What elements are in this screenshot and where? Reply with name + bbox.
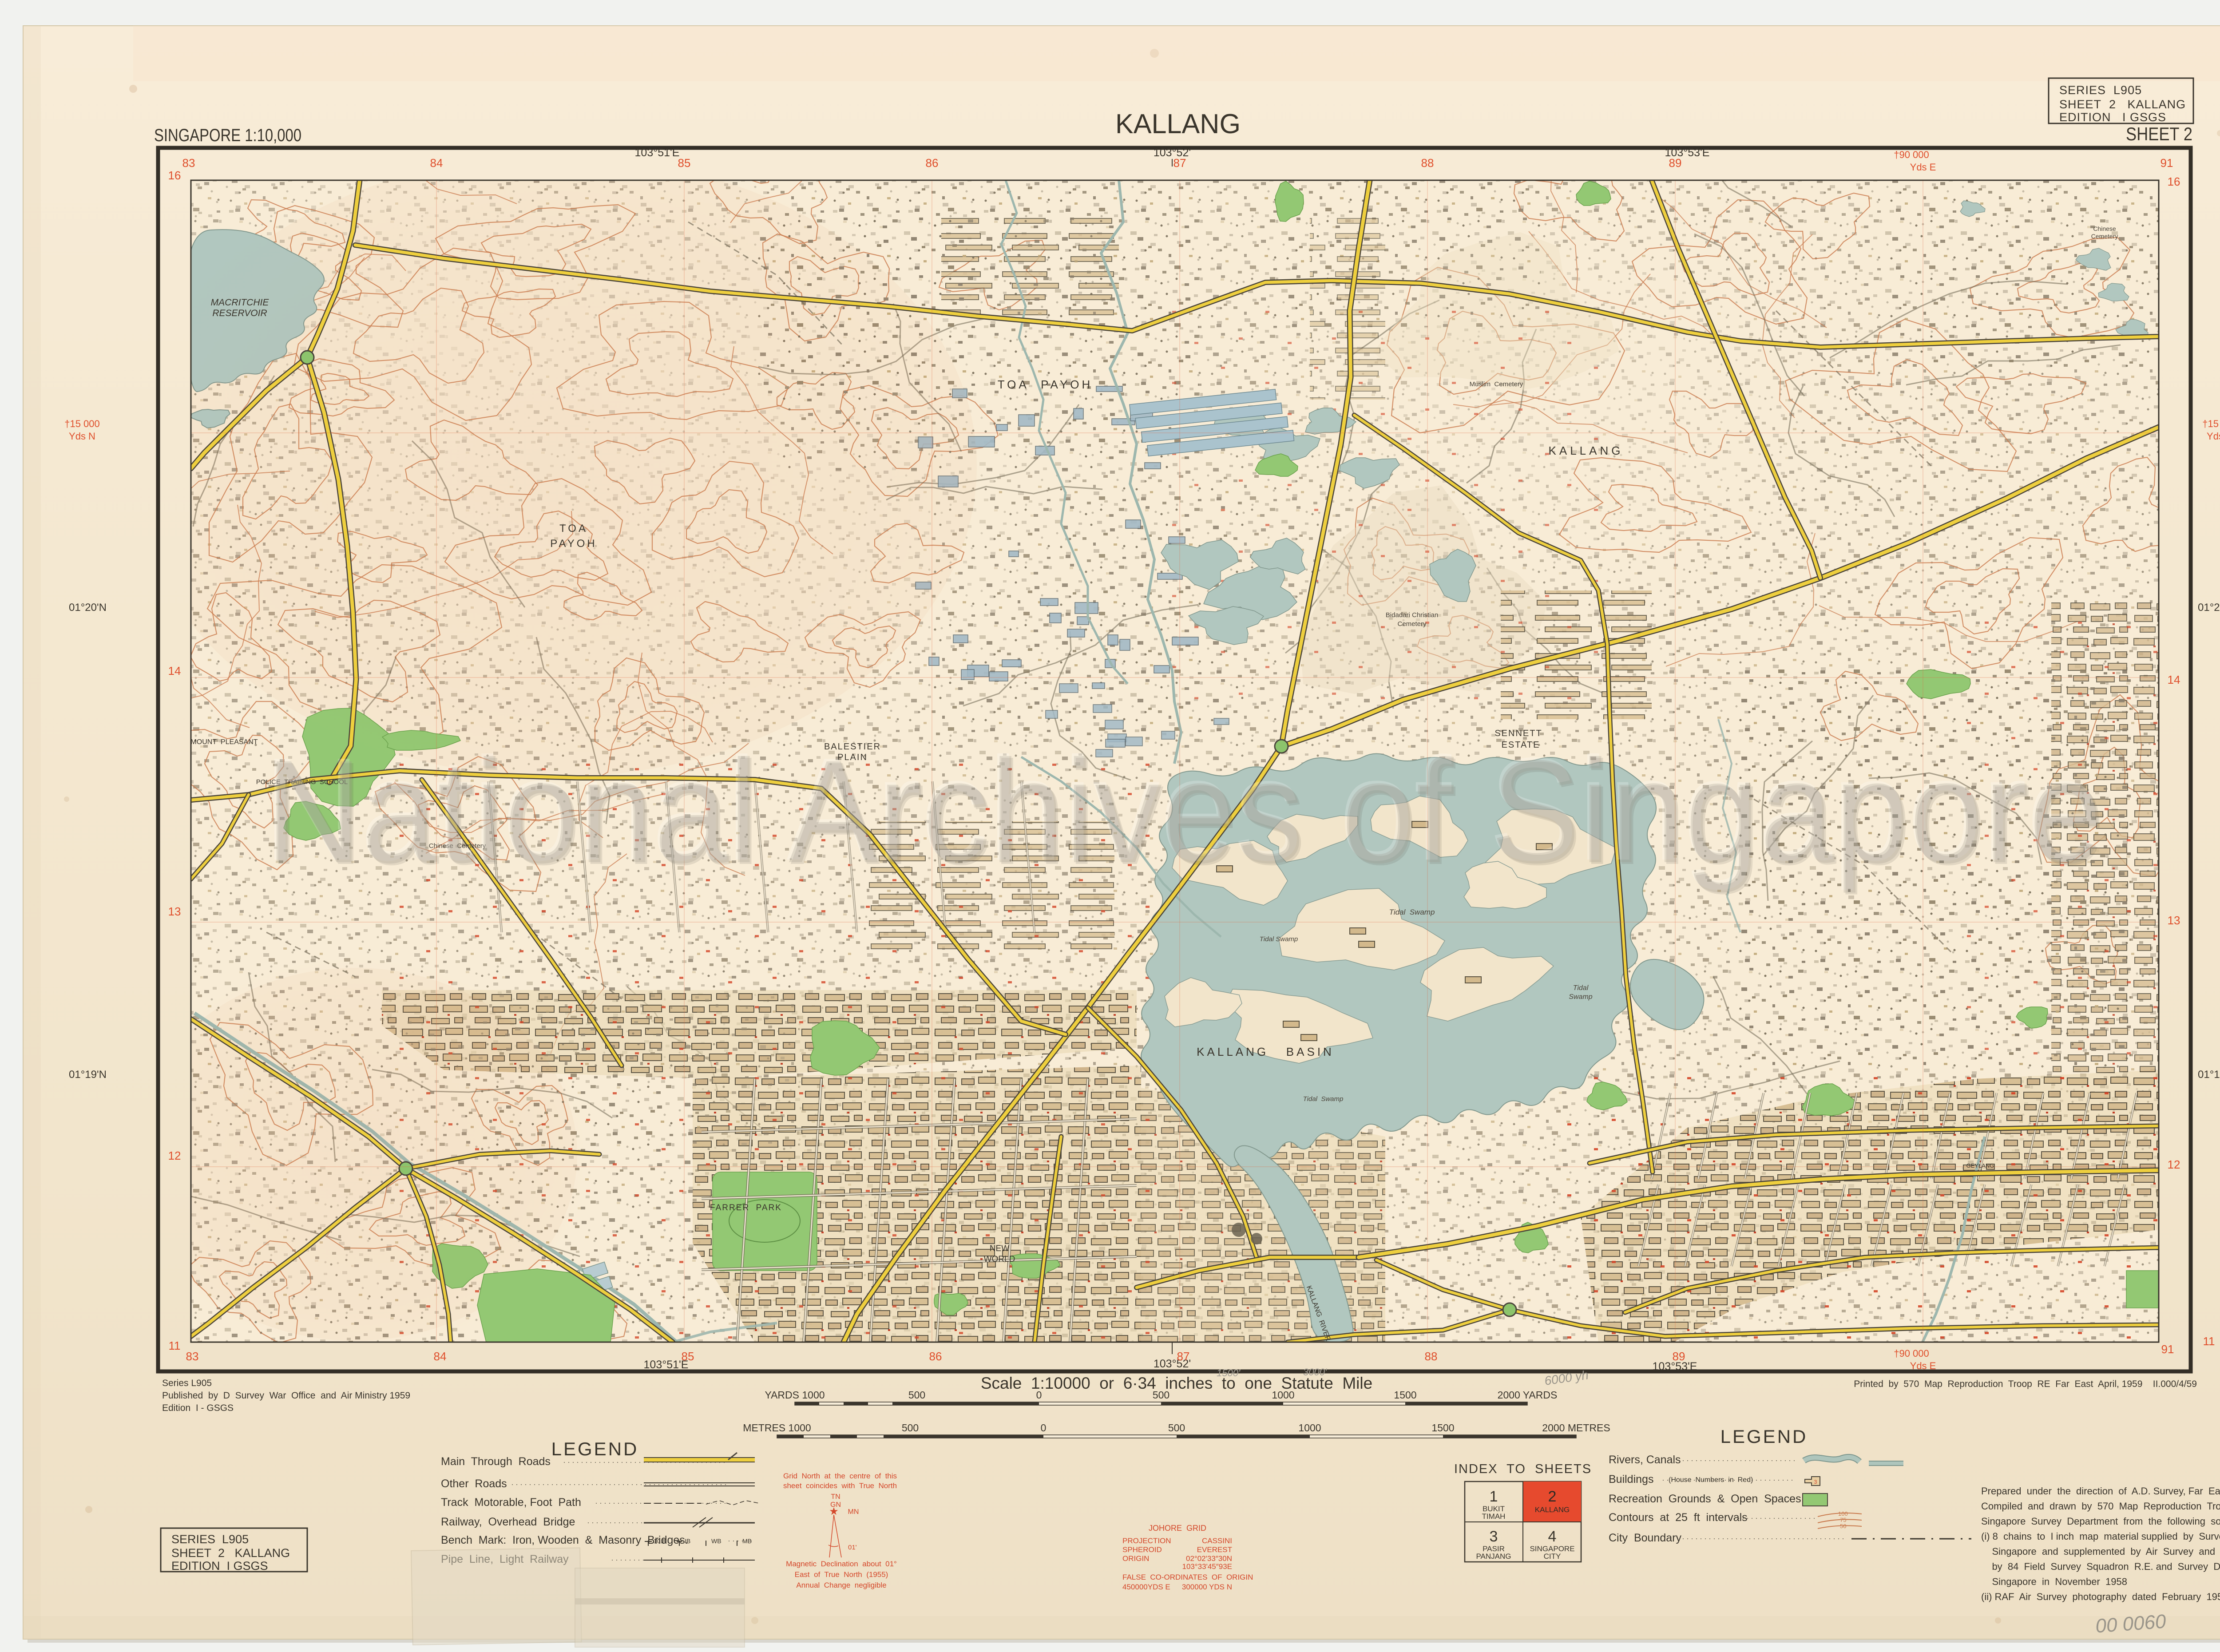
svg-text:LEGEND: LEGEND [551,1438,639,1459]
svg-text:87: 87 [1173,156,1186,170]
svg-text:TIMAH: TIMAH [1482,1512,1506,1521]
svg-text:500: 500 [908,1389,925,1401]
svg-text:East of True North (1955): East of True North (1955) [795,1570,888,1579]
svg-text:86: 86 [926,156,939,170]
svg-text:YARDS 1000: YARDS 1000 [765,1389,825,1401]
svg-text:Prepared under the directio: Prepared under the direction of A.D. Sur… [1981,1486,2220,1497]
svg-text:METRES 1000: METRES 1000 [743,1422,811,1434]
svg-text:0: 0 [1041,1422,1047,1434]
svg-text:FALSE CO-ORDINATES OF ORIGI: FALSE CO-ORDINATES OF ORIGIN [1122,1573,1253,1581]
svg-text:300000 YDS N: 300000 YDS N [1182,1583,1232,1591]
svg-text:Track Motorable, Foot Path: Track Motorable, Foot Path [441,1496,581,1509]
svg-text:TN: TN [831,1493,840,1501]
svg-text:CITY: CITY [1544,1552,1561,1561]
svg-text:SERIES L905: SERIES L905 [2059,83,2142,97]
svg-text:1500: 1500 [1394,1389,1416,1401]
svg-text:National Archives of Singapore: National Archives of Singapore [266,729,2104,894]
svg-text:SPHEROID: SPHEROID [1122,1545,1162,1554]
svg-text:Tidal Swamp: Tidal Swamp [1260,935,1298,943]
svg-text:City Boundary: City Boundary [1609,1532,1681,1544]
svg-text:1500': 1500' [1217,1367,1241,1379]
svg-text:Main Through Roads: Main Through Roads [441,1455,551,1468]
svg-text:01°19'N: 01°19'N [69,1069,107,1081]
svg-text:Singapore and supplemented: Singapore and supplemented by Air Survey… [1981,1546,2220,1557]
svg-text:KALLANG BASIN: KALLANG BASIN [1197,1045,1334,1058]
svg-text:0: 0 [1036,1389,1042,1401]
svg-text:Edition I - GSGS: Edition I - GSGS [162,1403,234,1413]
svg-text:86: 86 [929,1350,942,1363]
svg-text:83: 83 [182,156,195,170]
svg-text:500: 500 [1153,1389,1169,1401]
svg-text:2000 YARDS: 2000 YARDS [1498,1389,1558,1401]
svg-text:MB: MB [742,1537,752,1545]
svg-text:3: 3 [1814,1479,1817,1485]
svg-text:87: 87 [1177,1350,1190,1363]
svg-text:MOUNT PLEASANT: MOUNT PLEASANT [190,738,258,746]
svg-text:WB: WB [711,1537,721,1545]
svg-text:11: 11 [2203,1335,2215,1348]
svg-text:Compiled and drawn by 570: Compiled and drawn by 570 Map Reproducti… [1981,1501,2220,1512]
svg-text:Series L905: Series L905 [162,1378,212,1388]
svg-text:3000': 3000' [1303,1367,1327,1378]
svg-text:Grid North at the centre: Grid North at the centre of this [783,1472,897,1480]
svg-text:Swamp: Swamp [1569,993,1592,1001]
svg-text:PROJECTION: PROJECTION [1122,1537,1171,1545]
svg-text:KALLANG: KALLANG [1535,1505,1570,1514]
svg-text:450000YDS E: 450000YDS E [1122,1583,1170,1591]
svg-text:GEYLANG: GEYLANG [1966,1162,1994,1169]
svg-text:EVEREST: EVEREST [1197,1545,1232,1554]
svg-text:Published by D Survey War: Published by D Survey War Office and Air… [162,1391,410,1401]
svg-text:11: 11 [169,1339,181,1352]
svg-text:Railway, Overhead Bridge: Railway, Overhead Bridge [441,1516,575,1528]
svg-text:89: 89 [1669,156,1682,170]
svg-text:MACRITCHIE: MACRITCHIE [211,297,270,308]
svg-text:NEW: NEW [990,1244,1009,1253]
svg-text:13: 13 [2168,914,2180,927]
svg-text:JOHORE GRID: JOHORE GRID [1149,1524,1206,1533]
svg-text:EDITION I GSGS: EDITION I GSGS [171,1559,268,1573]
svg-text:91: 91 [2161,156,2173,170]
svg-text:Singapore in November 1958: Singapore in November 1958 [1981,1576,2127,1587]
svg-text:50: 50 [1840,1523,1846,1529]
svg-text:Magnetic Declination about: Magnetic Declination about 01° [786,1560,897,1568]
svg-text:13: 13 [168,905,181,918]
svg-text:FARRER PARK: FARRER PARK [710,1203,782,1212]
svg-text:103°51'E: 103°51'E [635,147,680,159]
svg-text:by 84 Field Survey Squadro: by 84 Field Survey Squadron R.E. and Sur… [1981,1561,2220,1572]
svg-text:Yds E: Yds E [1910,162,1936,173]
svg-text:10.8: 10.8 [654,1537,666,1545]
svg-text:1: 1 [1490,1488,1498,1505]
svg-text:Singapore Survey Department: Singapore Survey Department from the fol… [1981,1516,2220,1527]
svg-text:3: 3 [1490,1528,1498,1545]
svg-text:ORIGIN: ORIGIN [1122,1554,1149,1563]
svg-text:103°33'45″93E: 103°33'45″93E [1182,1562,1233,1571]
svg-text:(House Numbers in Red): (House Numbers in Red) [1669,1476,1753,1484]
svg-text:Muslim Cemetery: Muslim Cemetery [1470,380,1523,388]
svg-text:sheet coincides with True: sheet coincides with True North [783,1482,897,1490]
svg-text:MN: MN [848,1508,859,1516]
svg-text:01°20'N: 01°20'N [69,602,107,614]
svg-text:Bidadari Christian: Bidadari Christian [1386,611,1438,619]
svg-text:TOA: TOA [559,523,588,535]
svg-text:01': 01' [848,1544,857,1551]
svg-text:84: 84 [430,156,443,170]
svg-text:500: 500 [902,1422,919,1434]
svg-text:SHEET 2: SHEET 2 [2126,123,2192,144]
svg-text:16: 16 [2168,175,2180,188]
svg-text:KALLANG: KALLANG [1115,109,1241,139]
svg-text:RESERVOIR: RESERVOIR [212,308,267,318]
svg-text:84: 84 [434,1350,447,1363]
svg-text:83: 83 [186,1350,199,1363]
svg-text:LEGEND: LEGEND [1720,1426,1808,1447]
svg-text:1500: 1500 [1431,1422,1454,1434]
svg-text:WORLD: WORLD [984,1255,1015,1264]
svg-text:SERIES L905: SERIES L905 [171,1533,249,1546]
svg-text:INDEX TO SHEETS: INDEX TO SHEETS [1454,1462,1592,1476]
svg-text:Yds E: Yds E [1910,1360,1936,1371]
svg-text:01°20'N: 01°20'N [2198,602,2220,614]
svg-text:500: 500 [1168,1422,1185,1434]
svg-text:PANJANG: PANJANG [1476,1552,1511,1561]
svg-text:91: 91 [2161,1343,2174,1356]
svg-text:12: 12 [168,1149,181,1162]
svg-text:14: 14 [2168,673,2180,686]
svg-text:2: 2 [1548,1488,1557,1505]
svg-text:SHEET 2 KALLANG: SHEET 2 KALLANG [2059,98,2186,111]
svg-text:02°02'33″30N: 02°02'33″30N [1186,1554,1232,1563]
svg-text:Yds N: Yds N [2207,431,2220,442]
svg-text:85: 85 [678,156,691,170]
svg-text:TOA PAYOH: TOA PAYOH [998,378,1093,391]
svg-text:(ii) RAF Air Survey photogr: (ii) RAF Air Survey photography dated Fe… [1981,1591,2220,1602]
svg-text:Printed by 570 Map Reprodu: Printed by 570 Map Reproduction Troop RE… [1854,1379,2197,1389]
svg-text:Annual Change negligible: Annual Change negligible [796,1581,886,1589]
svg-text:KALLANG: KALLANG [1549,444,1624,457]
svg-text:1000: 1000 [1298,1422,1321,1434]
svg-text:88: 88 [1421,156,1434,170]
svg-text:PAYOH: PAYOH [550,538,597,550]
svg-text:89: 89 [1673,1350,1685,1363]
svg-text:Bench Mark: Iron, Wooden &: Bench Mark: Iron, Wooden & Masonry Bridg… [441,1534,688,1546]
svg-text:100: 100 [1838,1510,1848,1517]
svg-text:Tidal: Tidal [1573,984,1589,992]
svg-text:IB: IB [685,1537,690,1545]
svg-text:Cemetery: Cemetery [1397,620,1427,628]
svg-text:†15 000: †15 000 [64,418,100,429]
svg-text:14: 14 [168,664,181,677]
svg-text:2000 METRES: 2000 METRES [1542,1422,1610,1434]
svg-text:Rivers, Canals: Rivers, Canals [1609,1454,1681,1466]
svg-text:Tidal Swamp: Tidal Swamp [1389,908,1435,916]
svg-text:Recreation Grounds & Open: Recreation Grounds & Open Spaces [1609,1493,1801,1505]
svg-text:†90 000: †90 000 [1894,1348,1929,1359]
svg-text:4: 4 [1548,1528,1557,1545]
svg-text:(i) 8 chains to I inch map: (i) 8 chains to I inch map material supp… [1981,1531,2220,1542]
svg-text:Cemetery: Cemetery [2091,233,2118,240]
svg-text:1000: 1000 [1272,1389,1294,1401]
svg-text:Contours at 25 ft interval: Contours at 25 ft intervals [1609,1511,1748,1524]
svg-text:Other Roads: Other Roads [441,1478,507,1490]
svg-text:Yds N: Yds N [69,431,95,442]
svg-text:88: 88 [1425,1350,1438,1363]
svg-text:CASSINI: CASSINI [1202,1537,1232,1545]
svg-text:SHEET 2 KALLANG: SHEET 2 KALLANG [171,1546,290,1560]
svg-text:EDITION I GSGS: EDITION I GSGS [2059,111,2166,124]
svg-text:Tidal Swamp: Tidal Swamp [1303,1095,1344,1103]
svg-text:†15 000: †15 000 [2202,418,2220,429]
svg-text:01°19'N: 01°19'N [2198,1069,2220,1081]
svg-text:SINGAPORE 1:10,000: SINGAPORE 1:10,000 [154,126,301,145]
svg-text:12: 12 [2168,1158,2180,1171]
svg-text:Buildings: Buildings [1609,1473,1653,1486]
svg-text:75: 75 [1840,1517,1846,1523]
svg-text:16: 16 [168,169,181,182]
svg-text:Chinese: Chinese [2093,225,2116,232]
svg-text:†90 000: †90 000 [1894,149,1929,160]
svg-text:85: 85 [682,1350,694,1363]
